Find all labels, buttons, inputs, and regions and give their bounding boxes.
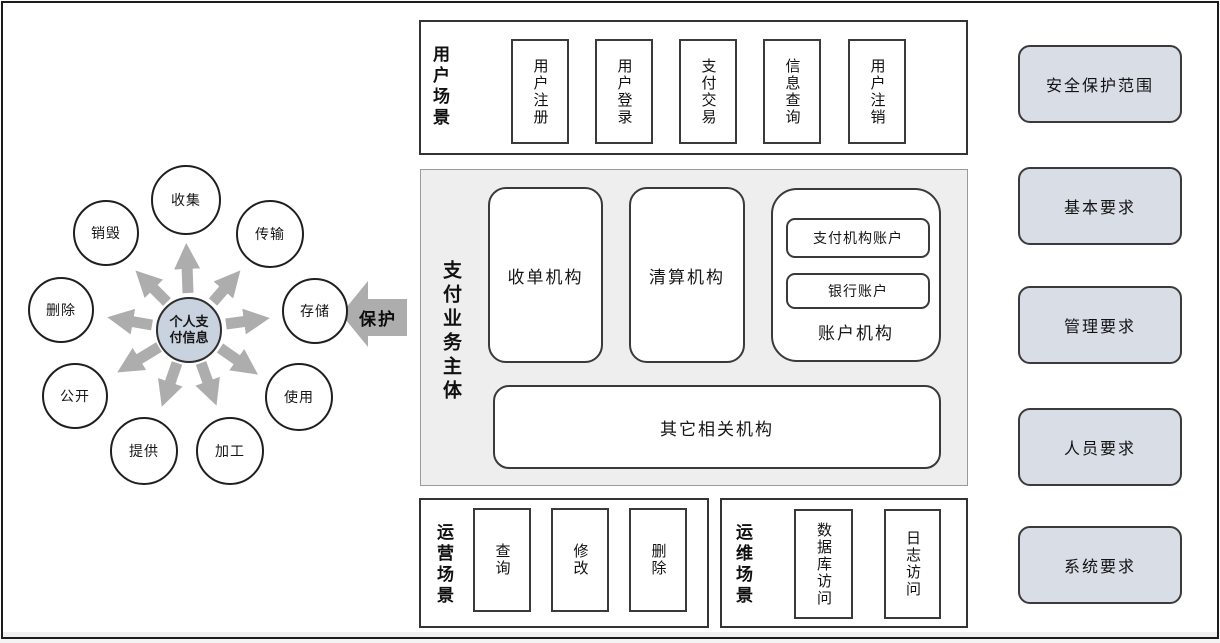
requirement-box-system: 系统要求 xyxy=(1018,526,1182,604)
user-scenario-item-transaction: 支付交易 xyxy=(679,39,737,144)
user-scenario-item-register: 用户注册 xyxy=(511,39,569,144)
arrow-to-process xyxy=(201,363,209,385)
lifecycle-stage-circle-disclose: 公开 xyxy=(42,363,108,429)
acquirer-box: 收单机构 xyxy=(488,187,603,363)
requirement-box-management: 管理要求 xyxy=(1018,286,1182,364)
account-institution-label: 账户机构 xyxy=(773,319,939,344)
lifecycle-stage-circle-collect: 收集 xyxy=(151,165,221,235)
user-scenario-item-login: 用户登录 xyxy=(595,39,653,144)
user-scenario-item-inquiry: 信息查询 xyxy=(763,39,821,144)
operation-scenarios-label: 运营场景 xyxy=(431,523,456,607)
outer-frame: 保护 收集 传输 存储 使用 加工 提供 公开 删除 销毁 个人支付信息 用户场… xyxy=(1,1,1219,639)
requirement-box-scope: 安全保护范围 xyxy=(1018,45,1182,123)
arrow-to-disclose xyxy=(136,347,159,361)
below-frame-strip xyxy=(0,639,1220,643)
arrow-to-transmit xyxy=(213,287,226,302)
account-institution-group: 支付机构账户 银行账户 账户机构 xyxy=(771,188,941,362)
arrow-to-store xyxy=(226,321,248,324)
payment-body-label: 支付业务主体 xyxy=(437,260,464,404)
lifecycle-stage-circle-provide: 提供 xyxy=(110,417,178,485)
lifecycle-stage-circle-use: 使用 xyxy=(265,363,333,431)
arrow-to-provide xyxy=(169,363,177,386)
payment-institution-account-box: 支付机构账户 xyxy=(786,218,930,258)
lifecycle-stage-circle-destroy: 销毁 xyxy=(73,200,139,266)
arrow-to-destroy xyxy=(151,286,167,302)
maintenance-item-log-access: 日志访问 xyxy=(884,509,941,619)
maintenance-scenarios-label: 运维场景 xyxy=(730,523,755,607)
arrow-to-collect xyxy=(187,265,188,293)
lifecycle-stage-circle-delete: 删除 xyxy=(28,277,94,343)
lifecycle-stage-circle-transmit: 传输 xyxy=(236,200,304,268)
user-scenario-item-deregister: 用户注销 xyxy=(848,39,906,144)
operation-item-delete: 删除 xyxy=(629,508,687,612)
clearing-box: 清算机构 xyxy=(629,187,745,363)
other-institutions-box: 其它相关机构 xyxy=(493,385,941,469)
maintenance-item-database-access: 数据库访问 xyxy=(794,509,853,619)
lifecycle-stage-circle-store: 存储 xyxy=(282,278,348,344)
operation-item-modify: 修改 xyxy=(551,508,609,612)
bank-account-box: 银行账户 xyxy=(786,273,930,309)
protect-label: 保护 xyxy=(353,305,403,330)
lifecycle-stage-circle-process: 加工 xyxy=(196,417,264,485)
arrow-to-use xyxy=(220,348,240,362)
requirement-box-personnel: 人员要求 xyxy=(1018,408,1182,486)
lifecycle-center-circle: 个人支付信息 xyxy=(156,297,222,363)
arrow-to-delete xyxy=(129,321,152,325)
operation-item-query: 查询 xyxy=(473,508,531,612)
user-scenarios-label: 用户场景 xyxy=(427,45,452,129)
slide: 保护 收集 传输 存储 使用 加工 提供 公开 删除 销毁 个人支付信息 用户场… xyxy=(0,0,1220,643)
requirement-box-basic: 基本要求 xyxy=(1018,167,1182,245)
